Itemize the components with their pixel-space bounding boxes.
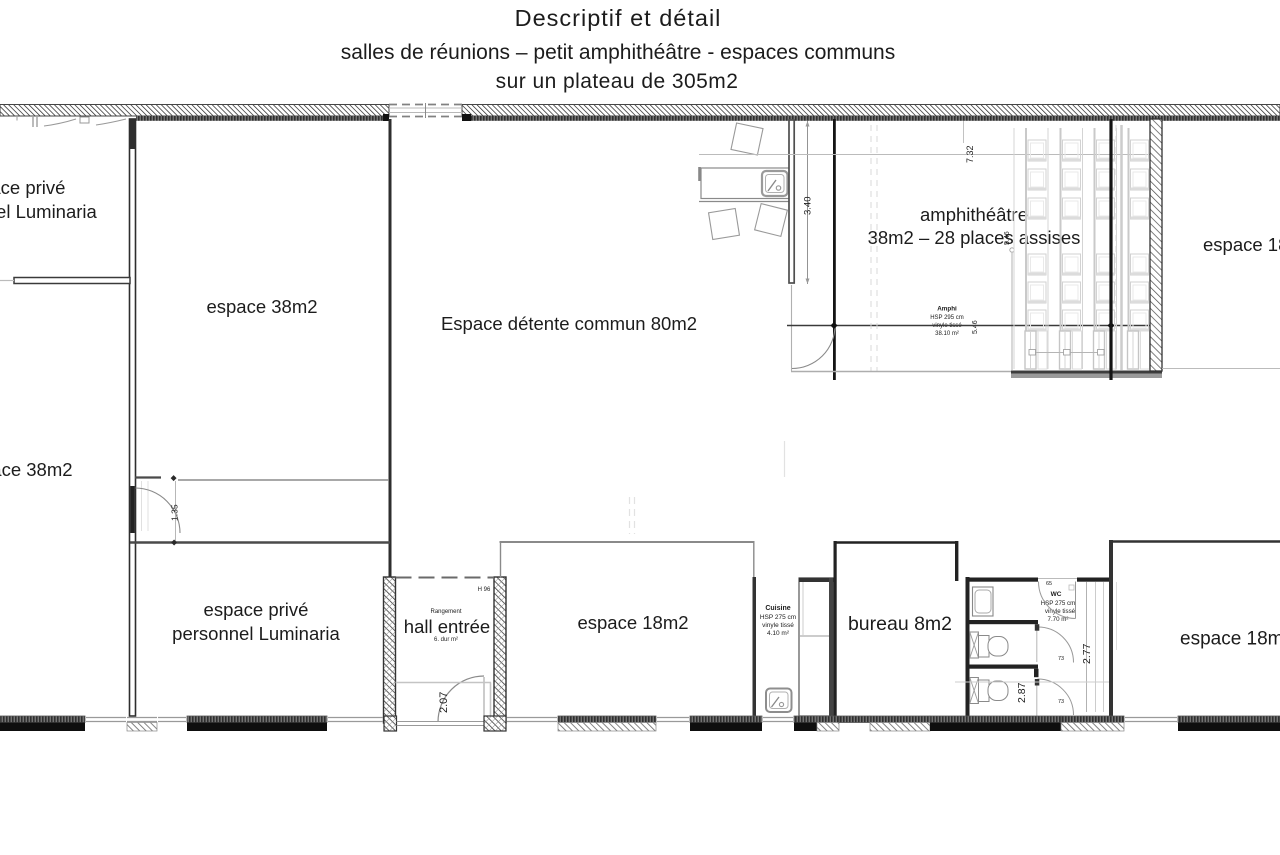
svg-text:espace 18m2: espace 18m2 xyxy=(1180,629,1280,650)
svg-text:H 96: H 96 xyxy=(478,587,491,593)
svg-text:2.87: 2.87 xyxy=(1016,682,1028,703)
svg-text:personnel Luminaria: personnel Luminaria xyxy=(0,201,98,222)
svg-text:espace 38m2: espace 38m2 xyxy=(206,296,317,317)
svg-text:vinyle tissé: vinyle tissé xyxy=(762,622,794,629)
svg-text:espace 18m2: espace 18m2 xyxy=(1203,234,1280,255)
svg-text:espace 38m2: espace 38m2 xyxy=(0,459,73,480)
svg-text:HSP 275 cm: HSP 275 cm xyxy=(760,614,796,621)
svg-text:amphithéâtre: amphithéâtre xyxy=(920,204,1028,225)
svg-text:38.10 m²: 38.10 m² xyxy=(935,331,959,337)
svg-text:3.40: 3.40 xyxy=(803,197,814,216)
svg-text:73: 73 xyxy=(1058,656,1064,662)
svg-text:HSP 295 cm: HSP 295 cm xyxy=(930,315,964,321)
svg-text:2.07: 2.07 xyxy=(438,692,450,713)
svg-text:sur un plateau de 305m2: sur un plateau de 305m2 xyxy=(496,70,739,93)
svg-text:vinyle tissé: vinyle tissé xyxy=(1045,608,1076,615)
svg-text:Descriptif et détail: Descriptif et détail xyxy=(515,5,722,31)
svg-text:Rangement: Rangement xyxy=(430,609,461,615)
svg-text:4.10 m²: 4.10 m² xyxy=(767,630,790,637)
svg-text:5.46: 5.46 xyxy=(972,320,979,334)
svg-text:7.32: 7.32 xyxy=(965,145,975,163)
svg-text:WC: WC xyxy=(1051,591,1062,598)
svg-text:personnel Luminaria: personnel Luminaria xyxy=(172,623,340,644)
svg-text:2.77: 2.77 xyxy=(1081,643,1093,664)
svg-text:salles de réunions – petit amp: salles de réunions – petit amphithéâtre … xyxy=(341,41,895,64)
svg-text:38m2 – 28 places assises: 38m2 – 28 places assises xyxy=(868,227,1081,248)
svg-text:Espace détente commun 80m2: Espace détente commun 80m2 xyxy=(441,313,697,334)
svg-text:Cuisine: Cuisine xyxy=(765,605,790,612)
svg-text:Amphi: Amphi xyxy=(937,306,957,313)
svg-text:5.46: 5.46 xyxy=(1004,231,1011,245)
svg-text:espace privé: espace privé xyxy=(0,177,65,198)
svg-text:bureau 8m2: bureau 8m2 xyxy=(848,613,952,635)
svg-text:espace 18m2: espace 18m2 xyxy=(577,612,688,633)
svg-text:73: 73 xyxy=(1058,699,1064,705)
svg-text:hall entrée: hall entrée xyxy=(404,616,490,637)
svg-text:espace privé: espace privé xyxy=(204,599,309,620)
svg-text:1.35: 1.35 xyxy=(170,504,180,521)
svg-text:6. dur m²: 6. dur m² xyxy=(434,637,458,643)
svg-text:65: 65 xyxy=(1046,581,1052,587)
